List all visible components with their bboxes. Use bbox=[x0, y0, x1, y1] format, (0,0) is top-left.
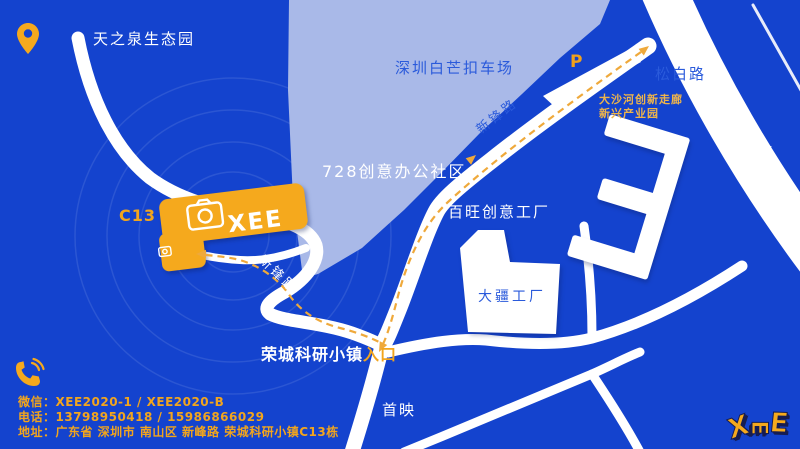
map-canvas: 天之泉生态园 深圳白芒扣车场 P 松白路 大沙河创新走廊 新兴产业园 人行桥 7… bbox=[0, 0, 800, 449]
road-label-songbai: 松白路 bbox=[655, 66, 706, 83]
parking-p-marker: P bbox=[570, 53, 582, 73]
logo-letter-e2: E bbox=[768, 410, 789, 438]
contact-address: 地址：广东省 深圳市 南山区 新峰路 荣城科研小镇C13栋 bbox=[18, 423, 339, 440]
logo-letter-e1: E bbox=[746, 420, 768, 435]
road-songbai-shape bbox=[655, 0, 800, 260]
road-bottom-branch bbox=[592, 374, 640, 449]
building-dji-factory bbox=[460, 230, 560, 334]
xee-3d-logo: X E E bbox=[726, 409, 789, 442]
corridor-label-line2: 新兴产业园 bbox=[599, 108, 659, 121]
road-divider-line bbox=[753, 5, 800, 115]
building-complex-e bbox=[567, 114, 691, 280]
area-728-label: 728创意办公社区 bbox=[322, 163, 467, 181]
baiwang-factory-label: 百旺创意工厂 bbox=[448, 204, 550, 221]
entrance-label: 荣城科研小镇入口 bbox=[261, 346, 397, 364]
corridor-label-line1: 大沙河创新走廊 bbox=[599, 94, 683, 107]
location-pin-icon bbox=[17, 23, 39, 54]
phone-icon bbox=[16, 359, 44, 386]
road-under-dji bbox=[388, 266, 742, 352]
shouying-label: 首映 bbox=[382, 402, 416, 419]
poi-label-tianzhiquan: 天之泉生态园 bbox=[93, 31, 195, 48]
entrance-name: 荣城科研小镇 bbox=[261, 345, 363, 364]
parking-lot-area bbox=[288, 0, 610, 278]
road-building-doorstep bbox=[202, 248, 306, 260]
entrance-highlight: 入口 bbox=[363, 345, 397, 364]
parking-lot-label: 深圳白芒扣车场 bbox=[395, 60, 514, 77]
dji-factory-label: 大疆工厂 bbox=[478, 289, 546, 305]
footbridge-label: 人行桥 bbox=[729, 146, 774, 162]
building-code-c13: C13 bbox=[119, 207, 156, 225]
